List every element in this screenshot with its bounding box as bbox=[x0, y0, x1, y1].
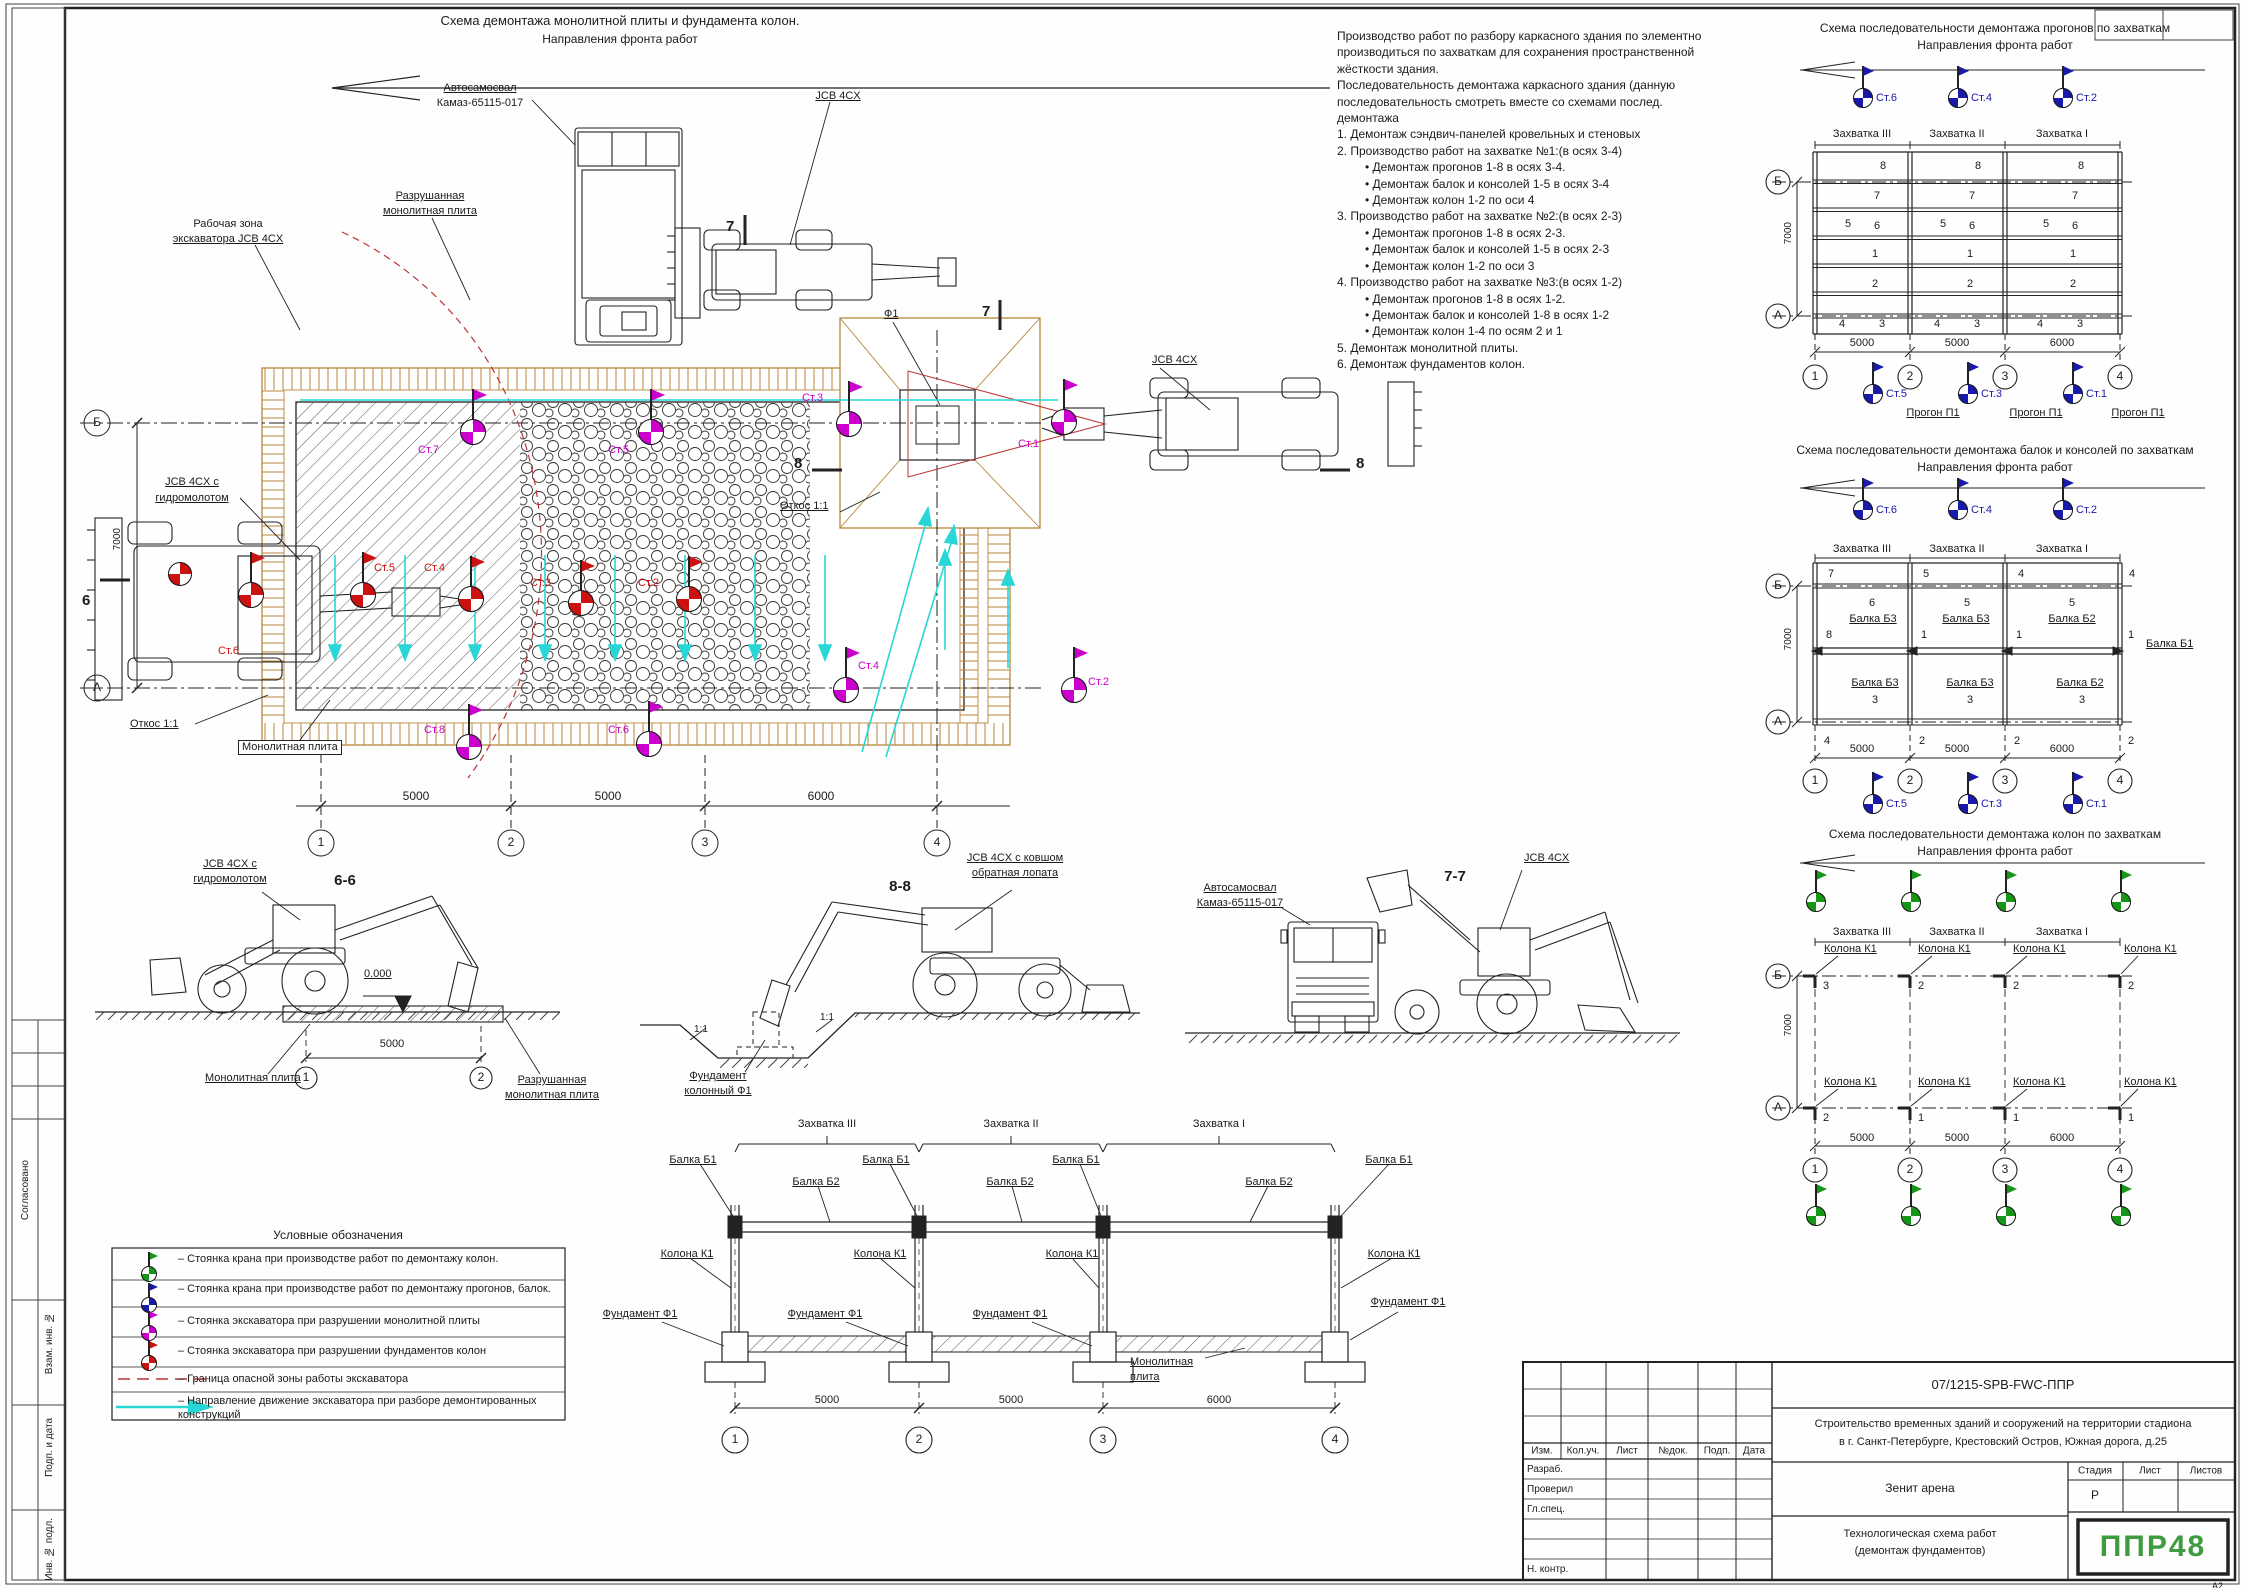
seq-number: 1 bbox=[2128, 629, 2134, 642]
seq-number: 5 bbox=[1845, 218, 1851, 231]
note-line: • Демонтаж балок и консолей 1-5 в осях 3… bbox=[1337, 176, 1772, 192]
beam-b2-label: Балка Б2 bbox=[1245, 1176, 1292, 1189]
axis-label: 2 bbox=[916, 1433, 923, 1447]
seq-number: 4 bbox=[2037, 318, 2043, 331]
slope-label-left: Откос 1:1 bbox=[130, 718, 179, 731]
seq-number: 2 bbox=[1919, 735, 1925, 748]
note-line: производиться по захваткам для сохранени… bbox=[1337, 44, 1772, 60]
seq-number: 1 bbox=[1872, 248, 1878, 261]
station-label-blue: Ст.1 bbox=[2086, 798, 2107, 811]
strip-label: Согласовано bbox=[20, 1160, 32, 1220]
station-label-magenta: Ст.8 bbox=[424, 724, 445, 737]
column-label: Колона К1 bbox=[1918, 943, 1971, 956]
hydrohammer-label-2: гидромолотом bbox=[155, 492, 228, 505]
dim-label-vertical: 7000 bbox=[112, 528, 124, 550]
dim-label: 5000 bbox=[999, 1394, 1023, 1407]
seq-number: 5 bbox=[1923, 568, 1929, 581]
strip-label: Взам. инв. № bbox=[44, 1312, 56, 1374]
dim-label: 5000 bbox=[1850, 337, 1874, 350]
dim-label-vertical: 7000 bbox=[1783, 222, 1795, 244]
zahvatka-label: Захватка I bbox=[2036, 128, 2088, 141]
station-label-magenta: Ст.5 bbox=[608, 444, 629, 457]
strip-label: Подп. и дата bbox=[44, 1418, 56, 1477]
seq-number: 4 bbox=[1934, 318, 1940, 331]
axis-label: 3 bbox=[2002, 370, 2009, 384]
column-label: Колона К1 bbox=[2013, 943, 2066, 956]
seq-number: 2 bbox=[2128, 735, 2134, 748]
seq-number: 6 bbox=[1874, 220, 1880, 233]
axis-label: 2 bbox=[1907, 1163, 1914, 1177]
foundation-label-2: колонный Ф1 bbox=[684, 1085, 751, 1098]
scheme3-title: Схема последовательности демонтажа колон… bbox=[1829, 828, 2161, 842]
beam-label: Балка Б3 bbox=[1946, 677, 1993, 690]
progon-label: Прогон П1 bbox=[2009, 407, 2062, 420]
work-zone-label-2: экскаватора JCB 4CX bbox=[173, 233, 283, 246]
axis-label: Б bbox=[1774, 175, 1782, 189]
dim-label: 5000 bbox=[403, 790, 430, 804]
seq-number: 2 bbox=[1967, 278, 1973, 291]
beam-label-b1: Балка Б1 bbox=[2146, 638, 2193, 651]
axis-label: 1 bbox=[732, 1433, 739, 1447]
station-label-blue: Ст.6 bbox=[1876, 504, 1897, 517]
seq-number: 8 bbox=[1880, 160, 1886, 173]
seq-number: 2 bbox=[2070, 278, 2076, 291]
axis-label: 4 bbox=[2117, 370, 2124, 384]
zahvatka-label: Захватка I bbox=[1193, 1118, 1245, 1131]
seq-number: 4 bbox=[1824, 735, 1830, 748]
station-label-blue: Ст.5 bbox=[1886, 798, 1907, 811]
work-zone-label: Рабочая зона bbox=[193, 218, 262, 231]
station-label-blue: Ст.6 bbox=[1876, 92, 1897, 105]
seq-number: 1 bbox=[2128, 1112, 2134, 1125]
dim-label: 6000 bbox=[1207, 1394, 1231, 1407]
truck-label-2: Камаз-65115-017 bbox=[1197, 897, 1284, 910]
column-label: Колона К1 bbox=[2124, 1076, 2177, 1089]
seq-number: 7 bbox=[2072, 190, 2078, 203]
jcb-top-label: JCB 4CX bbox=[815, 90, 860, 103]
note-line: последовательность смотреть вместе со сх… bbox=[1337, 94, 1772, 110]
sheet-format: А2 bbox=[2212, 1581, 2223, 1588]
level-mark-label: 0.000 bbox=[364, 968, 392, 981]
station-label-red: Ст.5 bbox=[374, 562, 395, 575]
beam-b1-label: Балка Б1 bbox=[1365, 1154, 1412, 1167]
progon-label: Прогон П1 bbox=[1906, 407, 1959, 420]
zahvatka-label: Захватка III bbox=[1833, 926, 1891, 939]
axis-label: А bbox=[1774, 1101, 1782, 1115]
stage-value: Р bbox=[2091, 1489, 2099, 1503]
axis-label: 3 bbox=[1100, 1433, 1107, 1447]
zahvatka-label: Захватка II bbox=[1929, 543, 1984, 556]
foundation-label: Фундамент Ф1 bbox=[788, 1308, 863, 1321]
beam-label: Балка Б3 bbox=[1851, 677, 1898, 690]
progon-label: Прогон П1 bbox=[2111, 407, 2164, 420]
tb-row-label: Н. контр. bbox=[1527, 1564, 1568, 1576]
station-label-magenta: Ст.3 bbox=[802, 392, 823, 405]
tb-col-header: Кол.уч. bbox=[1567, 1445, 1600, 1457]
zahvatka-label: Захватка III bbox=[798, 1118, 856, 1131]
seq-number: 2 bbox=[2014, 735, 2020, 748]
scheme1-title: Схема последовательности демонтажа прого… bbox=[1820, 22, 2170, 36]
column-label: Колона К1 bbox=[2013, 1076, 2066, 1089]
dim-label: 5000 bbox=[1850, 1132, 1874, 1145]
beam-b1-label: Балка Б1 bbox=[1052, 1154, 1099, 1167]
beam-label: Балка Б2 bbox=[2048, 613, 2095, 626]
station-label-red: Ст.2 bbox=[638, 577, 659, 590]
column-label: Колона К1 bbox=[1918, 1076, 1971, 1089]
scheme2-front: Направления фронта работ bbox=[1917, 461, 2072, 475]
column-label: Колона К1 bbox=[1368, 1248, 1421, 1261]
note-line: • Демонтаж прогонов 1-8 в осях 3-4. bbox=[1337, 159, 1772, 175]
tb-row-label: Разраб. bbox=[1527, 1464, 1563, 1476]
scheme1-front: Направления фронта работ bbox=[1917, 39, 2072, 53]
station-label-red: Ст.3 bbox=[530, 577, 551, 590]
beam-b2-label: Балка Б2 bbox=[792, 1176, 839, 1189]
seq-number: 2 bbox=[1823, 1112, 1829, 1125]
seq-number: 1 bbox=[2016, 629, 2022, 642]
zahvatka-label: Захватка I bbox=[2036, 543, 2088, 556]
note-line: жёсткости здания. bbox=[1337, 61, 1772, 77]
axis-label: 2 bbox=[478, 1071, 485, 1085]
tb-col-header: №док. bbox=[1658, 1445, 1687, 1457]
section-88-title: 8-8 bbox=[889, 878, 911, 895]
strip-label: Инв. № подл. bbox=[44, 1518, 56, 1581]
slab-label-2: плита bbox=[1130, 1371, 1160, 1384]
tb-col-header: Лист bbox=[1616, 1445, 1638, 1457]
beam-b1-label: Балка Б1 bbox=[862, 1154, 909, 1167]
axis-label: А bbox=[1774, 715, 1782, 729]
note-line: • Демонтаж колон 1-2 по оси 3 bbox=[1337, 258, 1772, 274]
note-line: демонтажа bbox=[1337, 110, 1772, 126]
axis-label: 1 bbox=[303, 1071, 310, 1085]
seq-number: 3 bbox=[1974, 318, 1980, 331]
dim-label: 5000 bbox=[815, 1394, 839, 1407]
seq-number: 6 bbox=[2072, 220, 2078, 233]
note-line: • Демонтаж балок и консолей 1-8 в осях 1… bbox=[1337, 307, 1772, 323]
seq-number: 1 bbox=[2070, 248, 2076, 261]
doc-number: 07/1215-SPB-FWC-ППР bbox=[1932, 1378, 2075, 1393]
seq-number: 2 bbox=[1872, 278, 1878, 291]
section-mark-8: 8 bbox=[794, 455, 802, 472]
axis-label: 4 bbox=[2117, 774, 2124, 788]
axis-label: 1 bbox=[1812, 1163, 1819, 1177]
axis-label: 1 bbox=[318, 836, 325, 850]
drawing-sheet: Схема демонтажа монолитной плиты и фунда… bbox=[0, 0, 2245, 1588]
section-mark-7: 7 bbox=[982, 303, 990, 320]
zahvatka-label: Захватка II bbox=[1929, 128, 1984, 141]
seq-number: 3 bbox=[1967, 694, 1973, 707]
station-label-magenta: Ст.6 bbox=[608, 724, 629, 737]
beam-label: Балка Б3 bbox=[1942, 613, 1989, 626]
section-mark-7: 7 bbox=[726, 218, 734, 235]
axis-label: 1 bbox=[1812, 370, 1819, 384]
truck-label-2: Камаз-65115-017 bbox=[437, 97, 524, 110]
seq-number: 8 bbox=[2078, 160, 2084, 173]
section-mark-6: 6 bbox=[82, 592, 90, 609]
beam-b1-label: Балка Б1 bbox=[669, 1154, 716, 1167]
note-line: • Демонтаж прогонов 1-8 в осях 2-3. bbox=[1337, 225, 1772, 241]
note-line: 2. Производство работ на захватке №1:(в … bbox=[1337, 143, 1772, 159]
seq-number: 5 bbox=[2043, 218, 2049, 231]
beam-label: Балка Б3 bbox=[1849, 613, 1896, 626]
dim-label-vertical: 7000 bbox=[1783, 628, 1795, 650]
zahvatka-label: Захватка I bbox=[2036, 926, 2088, 939]
legend-item: – Стоянка крана при производстве работ п… bbox=[178, 1253, 560, 1267]
note-line: 4. Производство работ на захватке №3:(в … bbox=[1337, 274, 1772, 290]
axis-label: Б bbox=[1774, 969, 1782, 983]
section-88-machine-label: JCB 4CX с ковшом bbox=[967, 852, 1063, 865]
seq-number: 3 bbox=[1823, 980, 1829, 993]
note-line: • Демонтаж колон 1-2 по оси 4 bbox=[1337, 192, 1772, 208]
foundation-label: Фундамент Ф1 bbox=[973, 1308, 1048, 1321]
foundation-f1-label: Ф1 bbox=[884, 308, 898, 321]
station-label-blue: Ст.5 bbox=[1886, 388, 1907, 401]
stage-header: Стадия bbox=[2078, 1465, 2112, 1477]
sheets-header: Листов bbox=[2190, 1465, 2223, 1477]
seq-number: 5 bbox=[1940, 218, 1946, 231]
project-name-2: в г. Санкт-Петербурге, Крестовский Остро… bbox=[1839, 1436, 2167, 1449]
zahvatka-label: Захватка III bbox=[1833, 128, 1891, 141]
tb-col-header: Дата bbox=[1743, 1445, 1765, 1457]
station-label-magenta: Ст.7 bbox=[418, 444, 439, 457]
seq-number: 1 bbox=[1967, 248, 1973, 261]
section-88-machine-label-2: обратная лопата bbox=[972, 867, 1058, 880]
dim-label: 6000 bbox=[2050, 743, 2074, 756]
station-label-red: Ст.6 bbox=[218, 645, 239, 658]
axis-label: 4 bbox=[1332, 1433, 1339, 1447]
station-label-blue: Ст.1 bbox=[2086, 388, 2107, 401]
legend-item: – Стоянка экскаватора при разрушении фун… bbox=[178, 1345, 560, 1359]
axis-label: 3 bbox=[702, 836, 709, 850]
section-66-machine-label-2: гидромолотом bbox=[193, 873, 266, 886]
destroyed-slab-label: Разрушанная bbox=[396, 190, 465, 203]
column-label: Колона К1 bbox=[1046, 1248, 1099, 1261]
note-line: 6. Демонтаж фундаментов колон. bbox=[1337, 356, 1772, 372]
column-label: Колона К1 bbox=[1824, 1076, 1877, 1089]
destroyed-slab-label-2: монолитная плита bbox=[383, 205, 477, 218]
seq-number: 4 bbox=[2129, 568, 2135, 581]
seq-number: 8 bbox=[1826, 629, 1832, 642]
slab-label: Монолитная bbox=[1130, 1356, 1193, 1369]
plan-title: Схема демонтажа монолитной плиты и фунда… bbox=[440, 14, 799, 29]
station-label-blue: Ст.3 bbox=[1981, 798, 2002, 811]
axis-label: 4 bbox=[934, 836, 941, 850]
jcb-label: JCB 4CX bbox=[1524, 852, 1569, 865]
seq-number: 4 bbox=[1839, 318, 1845, 331]
beam-b2-label: Балка Б2 bbox=[986, 1176, 1033, 1189]
section-66-title: 6-6 bbox=[334, 872, 356, 889]
note-line: • Демонтаж прогонов 1-8 в осях 1-2. bbox=[1337, 291, 1772, 307]
axis-label: Б bbox=[93, 416, 101, 430]
axis-label: Б bbox=[1774, 579, 1782, 593]
object-name: Зенит арена bbox=[1885, 1482, 1954, 1496]
tb-col-header: Изм. bbox=[1531, 1445, 1552, 1457]
dim-label: 5000 bbox=[1850, 743, 1874, 756]
scheme2-title: Схема последовательности демонтажа балок… bbox=[1796, 444, 2193, 458]
station-label-magenta: Ст.4 bbox=[858, 660, 879, 673]
seq-number: 7 bbox=[1969, 190, 1975, 203]
seq-number: 3 bbox=[1872, 694, 1878, 707]
station-label-blue: Ст.2 bbox=[2076, 92, 2097, 105]
slab-label: Монолитная плита bbox=[238, 740, 342, 755]
dim-label-vertical: 7000 bbox=[1783, 1014, 1795, 1036]
scheme3-front: Направления фронта работ bbox=[1917, 845, 2072, 859]
seq-number: 5 bbox=[1964, 597, 1970, 610]
foundation-label: Фундамент Ф1 bbox=[603, 1308, 678, 1321]
axis-label: 2 bbox=[1907, 370, 1914, 384]
seq-number: 1 bbox=[1918, 1112, 1924, 1125]
seq-number: 6 bbox=[1969, 220, 1975, 233]
slab-label: Монолитная плита bbox=[205, 1072, 301, 1085]
legend-item: – Стоянка крана при производстве работ п… bbox=[178, 1283, 560, 1297]
sheet-header: Лист bbox=[2139, 1465, 2161, 1477]
jcb-right-label: JCB 4CX bbox=[1152, 354, 1197, 367]
seq-number: 3 bbox=[2077, 318, 2083, 331]
zahvatka-label: Захватка II bbox=[983, 1118, 1038, 1131]
seq-number: 3 bbox=[1879, 318, 1885, 331]
station-label-blue: Ст.4 bbox=[1971, 504, 1992, 517]
axis-label: 3 bbox=[2002, 774, 2009, 788]
seq-number: 7 bbox=[1874, 190, 1880, 203]
destroyed-slab-label-2: монолитная плита bbox=[505, 1089, 599, 1102]
station-label-magenta: Ст.1 bbox=[1018, 438, 1039, 451]
seq-number: 3 bbox=[2079, 694, 2085, 707]
station-label-blue: Ст.4 bbox=[1971, 92, 1992, 105]
dim-label: 6000 bbox=[808, 790, 835, 804]
plan-front-label: Направления фронта работ bbox=[542, 33, 697, 47]
dim-label: 6000 bbox=[2050, 1132, 2074, 1145]
axis-label: А bbox=[1774, 309, 1782, 323]
station-label-magenta: Ст.2 bbox=[1088, 676, 1109, 689]
note-line: • Демонтаж балок и консолей 1-5 в осях 2… bbox=[1337, 241, 1772, 257]
ppr48-logo: ППР48 bbox=[2100, 1530, 2207, 1564]
axis-label: 3 bbox=[2002, 1163, 2009, 1177]
section-66-machine-label: JCB 4CX с bbox=[203, 858, 257, 871]
dim-label: 5000 bbox=[1945, 743, 1969, 756]
slope-label-right: Откос 1:1 bbox=[780, 500, 829, 513]
axis-label: 4 bbox=[2117, 1163, 2124, 1177]
dim-label: 6000 bbox=[2050, 337, 2074, 350]
column-label: Колона К1 bbox=[854, 1248, 907, 1261]
seq-number: 7 bbox=[1828, 568, 1834, 581]
dim-label: 5000 bbox=[1945, 337, 1969, 350]
note-line: • Демонтаж колон 1-4 по осям 2 и 1 bbox=[1337, 323, 1772, 339]
seq-number: 2 bbox=[2013, 980, 2019, 993]
legend-title: Условные обозначения bbox=[273, 1229, 403, 1243]
seq-number: 5 bbox=[2069, 597, 2075, 610]
station-label-blue: Ст.3 bbox=[1981, 388, 2002, 401]
column-label: Колона К1 bbox=[661, 1248, 714, 1261]
foundation-label: Фундамент Ф1 bbox=[1371, 1296, 1446, 1309]
foundation-label: Фундамент bbox=[689, 1070, 746, 1083]
dim-label: 5000 bbox=[380, 1038, 404, 1051]
axis-label: 2 bbox=[508, 836, 515, 850]
section-mark-8: 8 bbox=[1356, 455, 1364, 472]
hydrohammer-label: JCB 4CX с bbox=[165, 476, 219, 489]
column-label: Колона К1 bbox=[2124, 943, 2177, 956]
dim-label: 5000 bbox=[1945, 1132, 1969, 1145]
project-name: Строительство временных зданий и сооруже… bbox=[1815, 1418, 2192, 1431]
seq-number: 1 bbox=[2013, 1112, 2019, 1125]
seq-number: 6 bbox=[1869, 597, 1875, 610]
axis-label: 1 bbox=[1812, 774, 1819, 788]
excavator-station-circle-red bbox=[168, 562, 192, 586]
note-line: 3. Производство работ на захватке №2:(в … bbox=[1337, 208, 1772, 224]
note-line: Последовательность демонтажа каркасного … bbox=[1337, 77, 1772, 93]
seq-number: 2 bbox=[2128, 980, 2134, 993]
legend-item: – Граница опасной зоны работы экскаватор… bbox=[178, 1373, 560, 1387]
destroyed-slab-label: Разрушанная bbox=[518, 1074, 587, 1087]
zahvatka-label: Захватка III bbox=[1833, 543, 1891, 556]
note-line: 5. Демонтаж монолитной плиты. bbox=[1337, 340, 1772, 356]
zahvatka-label: Захватка II bbox=[1929, 926, 1984, 939]
section-77-title: 7-7 bbox=[1444, 868, 1466, 885]
tb-row-label: Гл.спец. bbox=[1527, 1504, 1565, 1516]
seq-number: 4 bbox=[2018, 568, 2024, 581]
axis-label: 2 bbox=[1907, 774, 1914, 788]
station-label-blue: Ст.2 bbox=[2076, 504, 2097, 517]
legend-item: – Стоянка экскаватора при разрушении мон… bbox=[178, 1315, 560, 1329]
truck-label: Автосамосвал bbox=[1203, 882, 1276, 895]
tb-col-header: Подп. bbox=[1704, 1445, 1731, 1457]
tb-row-label: Проверил bbox=[1527, 1484, 1573, 1496]
station-label-red: Ст.4 bbox=[424, 562, 445, 575]
slope-ratio-label: 1:1 bbox=[694, 1024, 708, 1036]
work-notes: Производство работ по разбору каркасного… bbox=[1337, 28, 1772, 373]
sheet-title: Технологическая схема работ bbox=[1844, 1528, 1997, 1541]
axis-label: А bbox=[93, 681, 101, 695]
seq-number: 8 bbox=[1975, 160, 1981, 173]
note-line: Производство работ по разбору каркасного… bbox=[1337, 28, 1772, 44]
sheet-title-2: (демонтаж фундаментов) bbox=[1855, 1545, 1986, 1558]
legend-item: – Направление движение экскаватора при р… bbox=[178, 1395, 560, 1422]
slope-ratio-label: 1:1 bbox=[820, 1012, 834, 1024]
beam-label: Балка Б2 bbox=[2056, 677, 2103, 690]
dim-label: 5000 bbox=[595, 790, 622, 804]
seq-number: 2 bbox=[1918, 980, 1924, 993]
note-line: 1. Демонтаж сэндвич-панелей кровельных и… bbox=[1337, 126, 1772, 142]
truck-label: Автосамосвал bbox=[443, 82, 516, 95]
column-label: Колона К1 bbox=[1824, 943, 1877, 956]
seq-number: 1 bbox=[1921, 629, 1927, 642]
